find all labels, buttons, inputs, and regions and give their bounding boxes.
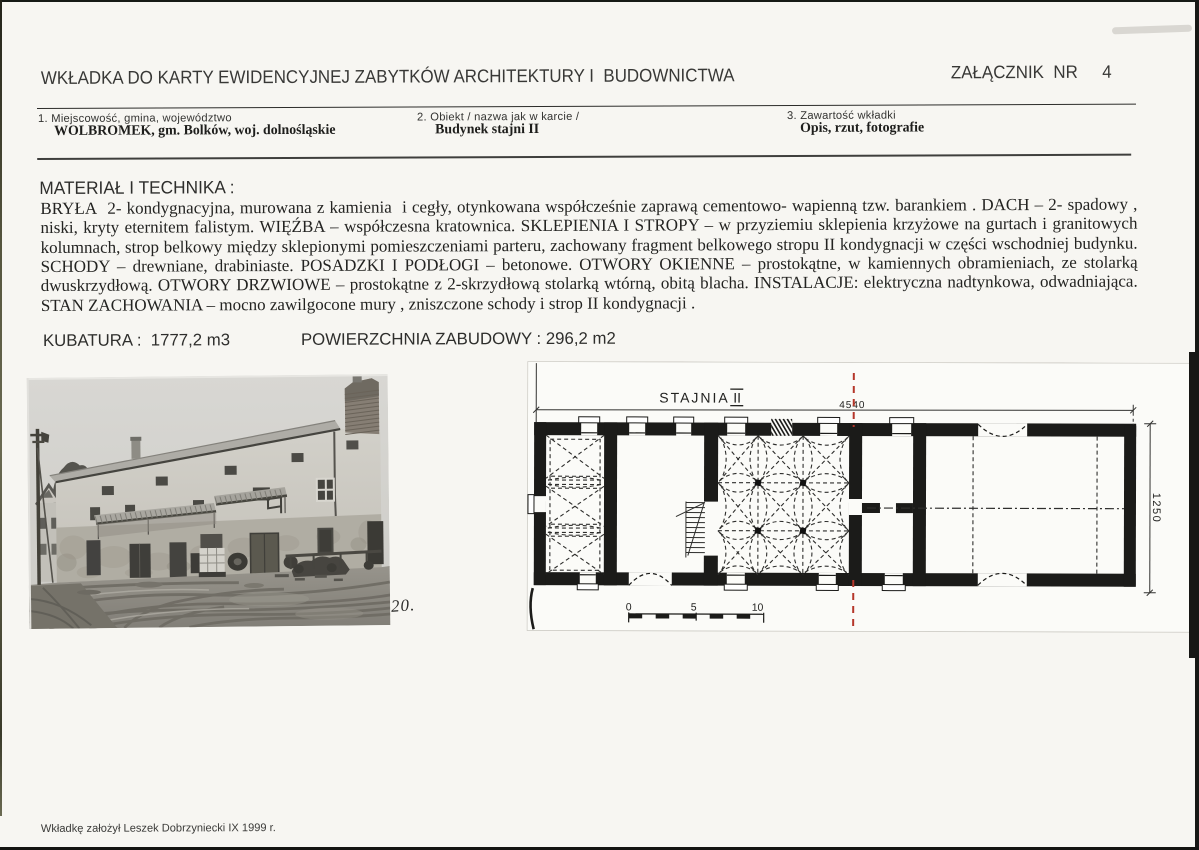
svg-text:II: II	[733, 390, 741, 406]
svg-text:STAJNIA: STAJNIA	[659, 389, 730, 405]
svg-text:5: 5	[691, 602, 697, 614]
svg-text:10: 10	[752, 602, 764, 614]
svg-text:1250: 1250	[1150, 493, 1162, 524]
svg-text:0: 0	[626, 601, 632, 613]
svg-text:4540: 4540	[839, 400, 865, 411]
